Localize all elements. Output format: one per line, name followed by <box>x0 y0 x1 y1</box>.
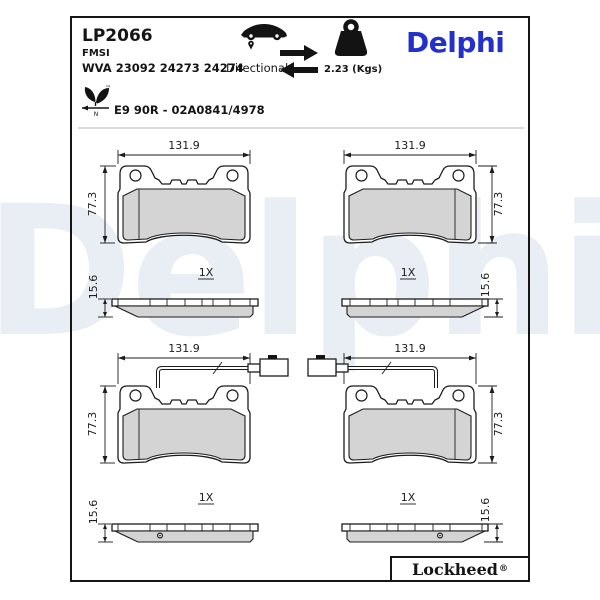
wva-numbers: WVA 23092 24273 24274 <box>82 61 244 75</box>
drawing-side-bottom-right: 1X 15.6 <box>300 480 530 565</box>
lockheed-brand-text: Lockheed <box>412 560 498 579</box>
friction-material <box>349 189 471 240</box>
fmsi-label: FMSI <box>82 48 110 59</box>
friction-material-edge <box>347 306 485 317</box>
wear-sensor-wire <box>158 368 248 388</box>
brake-pad-side-view <box>112 524 258 542</box>
part-number: LP2066 <box>82 26 153 46</box>
thickness-dim-label: 15.6 <box>479 498 492 523</box>
friction-material-edge <box>347 531 485 542</box>
header-divider <box>78 127 524 129</box>
drawing-front-bottom-left: 131.9 77.3 <box>85 340 300 490</box>
weight-icon <box>329 18 373 63</box>
qty-label: 1X <box>401 491 416 504</box>
sensor-connector <box>260 359 288 376</box>
brake-pad-front-view <box>118 386 250 463</box>
mounting-hole <box>453 170 464 181</box>
thickness-dim-label: 15.6 <box>87 275 100 300</box>
lockheed-logo: Lockheed® <box>390 556 530 582</box>
mounting-hole <box>453 390 464 401</box>
drawing-side-top-right: 1X 15.6 <box>300 255 530 340</box>
eco-leaf-icon: ™ N <box>79 85 113 121</box>
thickness-dim-label: 15.6 <box>479 273 492 298</box>
height-dim-label: 77.3 <box>86 412 99 437</box>
friction-material <box>123 409 245 460</box>
mounting-hole <box>130 170 141 181</box>
brake-pad-front-view <box>344 386 476 463</box>
drawing-side-bottom-left: 1X 15.6 <box>85 480 300 565</box>
sensor-connector <box>308 359 336 376</box>
connector-tab <box>268 355 277 359</box>
height-dim-label: 77.3 <box>492 192 505 217</box>
qty-label: 1X <box>401 266 416 279</box>
content-layer: LP2066 FMSI WVA 23092 24273 24274 Direct… <box>0 0 600 600</box>
height-dim-label: 77.3 <box>492 412 505 437</box>
sensor-wire-sleeve <box>248 364 260 372</box>
delphi-logo: Delphi <box>406 26 504 59</box>
drawing-front-top-right: 131.9 77.3 <box>300 135 530 260</box>
qty-label: 1X <box>199 266 214 279</box>
width-dim-label: 131.9 <box>168 139 200 152</box>
width-dim-label: 131.9 <box>168 342 200 355</box>
wear-sensor-wire <box>348 368 436 388</box>
eco-n-label: N <box>94 111 99 118</box>
approval-number: E9 90R - 02A0841/4978 <box>114 103 265 117</box>
height-dim-label: 77.3 <box>86 192 99 217</box>
width-dim-label: 131.9 <box>394 139 426 152</box>
qty-label: 1X <box>199 491 214 504</box>
drawing-front-bottom-right: 131.9 77.3 <box>300 340 530 490</box>
friction-material <box>123 189 245 240</box>
brake-pad-side-view <box>342 524 488 542</box>
sensor-wire-sleeve <box>336 364 348 372</box>
connector-tab <box>316 355 325 359</box>
mounting-hole <box>130 390 141 401</box>
brake-pad-front-view <box>118 166 250 243</box>
friction-material <box>349 409 471 460</box>
friction-material-edge <box>115 531 253 542</box>
registered-mark: ® <box>499 564 508 574</box>
mounting-hole <box>227 390 238 401</box>
mounting-hole <box>356 170 367 181</box>
weight-value: 2.23 (Kgs) <box>324 64 382 75</box>
mounting-hole <box>227 170 238 181</box>
drawing-side-top-left: 1X 15.6 <box>85 255 300 340</box>
brake-pad-side-view <box>342 299 488 317</box>
drawing-front-top-left: 131.9 77.3 <box>85 135 300 260</box>
friction-material-edge <box>115 306 253 317</box>
thickness-dim-label: 15.6 <box>87 500 100 525</box>
mounting-hole <box>356 390 367 401</box>
brake-pad-front-view <box>344 166 476 243</box>
width-dim-label: 131.9 <box>394 342 426 355</box>
directional-arrows-icon <box>278 43 320 78</box>
tm-mark: ™ <box>105 85 111 92</box>
brake-pad-side-view <box>112 299 258 317</box>
